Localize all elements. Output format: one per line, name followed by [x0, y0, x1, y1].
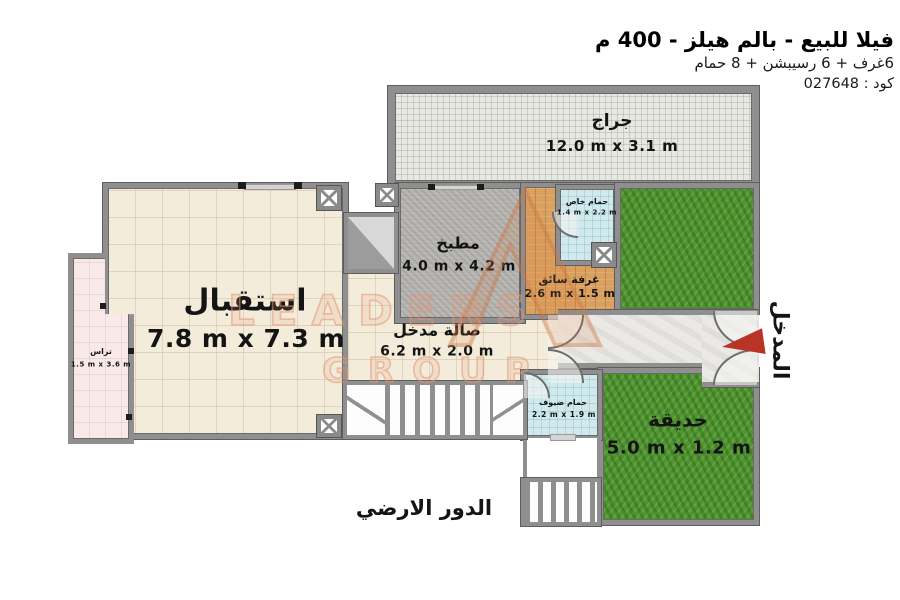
- garden-top: [615, 183, 759, 314]
- exterior-staircase: [521, 478, 601, 526]
- reception-dims: 7.8 m x 7.3 m: [147, 326, 345, 352]
- door-stop-marker: [477, 184, 484, 190]
- stair-diagonal-right: [493, 385, 523, 435]
- listing-title: فيلا للبيع - بالم هيلز - 400 م: [595, 28, 894, 52]
- door-threshold: [550, 434, 576, 441]
- listing-subtitle: 6غرف + 6 رسيبشن + 8 حمام: [694, 54, 894, 72]
- column-marker-icon: [592, 243, 616, 267]
- entry-hall-dims: 6.2 m x 2.0 m: [380, 345, 494, 360]
- entrance-label: المدخل: [768, 301, 791, 380]
- door-stop-marker: [126, 414, 132, 420]
- garage-label: جراج: [592, 113, 633, 131]
- column-marker-icon: [317, 186, 341, 210]
- stair-landing: [523, 438, 601, 480]
- private-bath-label: حمام خاص: [566, 198, 608, 206]
- garage-dims: 12.0 m x 3.1 m: [546, 139, 678, 155]
- stair-diagonal-left: [347, 385, 385, 435]
- listing-code: كود : 027648: [804, 76, 894, 92]
- column-marker-icon: [317, 415, 341, 437]
- door-stop-marker: [238, 182, 246, 189]
- floor-plan-canvas: فيلا للبيع - بالم هيلز - 400 م 6غرف + 6 …: [0, 0, 900, 600]
- room-kitchen: [395, 183, 525, 323]
- terrace-dims: 1.5 m x 3.6 m: [71, 361, 131, 368]
- door-stop-marker: [294, 182, 302, 189]
- column-marker-icon: [376, 184, 398, 206]
- terrace-label: تراس: [90, 348, 112, 356]
- garden-label: حديقة: [648, 410, 708, 431]
- main-staircase: [343, 381, 527, 439]
- driver-room-label: غرفة سائق: [538, 274, 599, 286]
- door-stop-marker: [128, 348, 134, 354]
- kitchen-dims: 4.0 m x 4.2 m: [402, 260, 516, 275]
- reception-label: استقبال: [183, 285, 306, 317]
- driver-room-dims: 2.6 m x 1.5 m: [525, 288, 616, 300]
- guest-bath-dims: 2.2 m x 1.9 m: [532, 411, 596, 419]
- guest-bath-label: حمام ضيوف: [539, 399, 587, 407]
- private-bath-dims: 1.4 m x 2.2 m: [557, 209, 617, 216]
- door-stop-marker: [100, 303, 106, 309]
- entry-hall-label: صالة مدخل: [393, 323, 481, 340]
- door-stop-marker: [428, 184, 435, 190]
- stair-treads: [385, 385, 493, 435]
- kitchen-label: مطبخ: [436, 236, 480, 253]
- floor-label: الدور الارضي: [356, 497, 492, 519]
- garage-ramp: [344, 213, 398, 273]
- window-strip: [244, 184, 296, 190]
- garden-dims: 5.0 m x 1.2 m: [607, 440, 751, 459]
- window-strip: [433, 185, 479, 190]
